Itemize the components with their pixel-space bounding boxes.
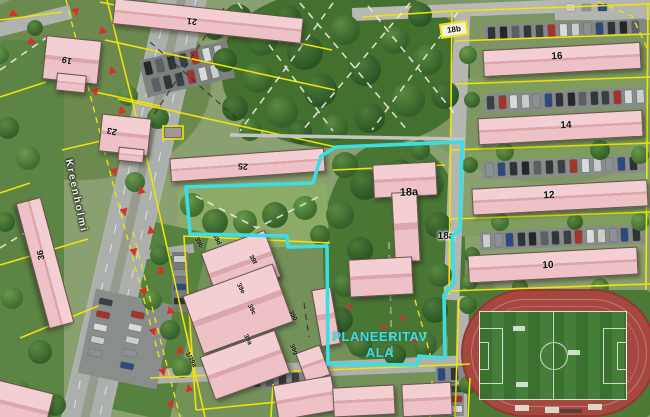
plan-area-label-line1: PLANEERITAV bbox=[330, 329, 430, 345]
map-label-1-39a: 1/39a bbox=[183, 351, 196, 368]
map-label-39a: 39a bbox=[242, 334, 253, 347]
map-label-14: 14 bbox=[560, 121, 572, 132]
map-label-21: 21 bbox=[187, 16, 198, 26]
map-label-12: 12 bbox=[543, 191, 555, 202]
map-label-19: 19 bbox=[61, 55, 73, 66]
map-label-23: 23 bbox=[106, 126, 118, 137]
map-label-18a: 18a bbox=[400, 187, 419, 199]
map-label-390: 390 bbox=[287, 310, 298, 323]
map-label-16: 16 bbox=[551, 52, 563, 63]
labels-layer: 1614121018a18a211923253639b39d39f39e39c3… bbox=[0, 0, 650, 417]
map-label-39c: 39c bbox=[246, 304, 257, 317]
map-label-25: 25 bbox=[238, 161, 249, 171]
map-label-39g: 39g bbox=[288, 344, 299, 357]
map-label-39d: 39d bbox=[211, 234, 222, 247]
aerial-planning-map[interactable]: 1614121018a18a211923253639b39d39f39e39c3… bbox=[0, 0, 650, 417]
map-label-36: 36 bbox=[36, 249, 47, 260]
map-label-39f: 39f bbox=[247, 254, 257, 265]
map-label-10: 10 bbox=[542, 261, 554, 272]
map-label-39e: 39e bbox=[235, 283, 246, 296]
plan-area-label-line2: ALA bbox=[330, 345, 430, 361]
map-label-39b: 39b bbox=[193, 237, 204, 250]
map-label-18a: 18a bbox=[438, 232, 455, 242]
plan-area-label: PLANEERITAV ALA bbox=[330, 329, 430, 362]
